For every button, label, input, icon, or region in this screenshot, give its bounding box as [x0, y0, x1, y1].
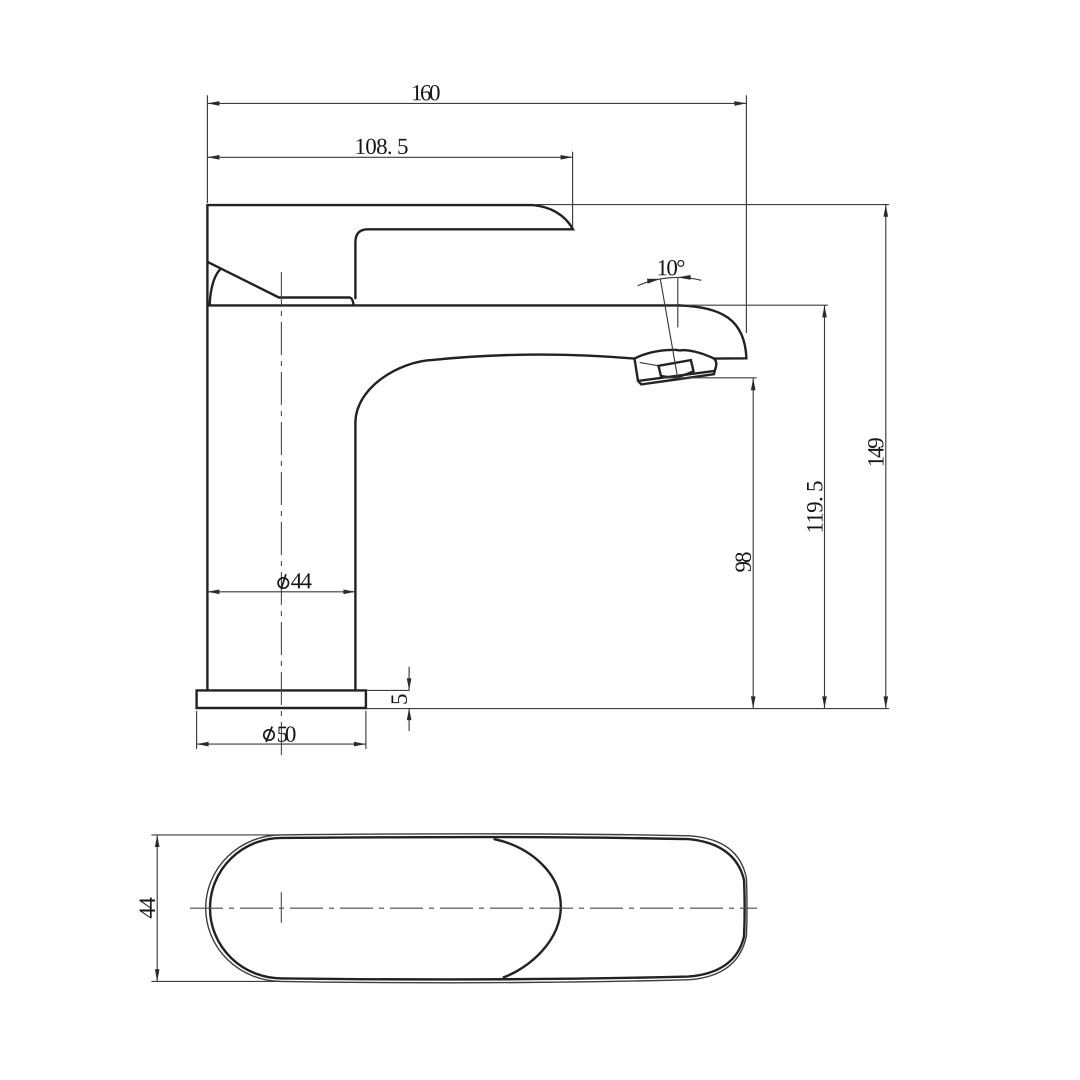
svg-text:160: 160	[411, 80, 441, 105]
svg-text:44: 44	[291, 568, 313, 593]
svg-text:119. 5: 119. 5	[802, 481, 827, 534]
svg-text:108. 5: 108. 5	[354, 134, 408, 159]
svg-text:149: 149	[864, 437, 889, 467]
svg-text:50: 50	[277, 722, 297, 747]
svg-text:44: 44	[135, 897, 160, 919]
svg-text:5: 5	[387, 693, 412, 705]
svg-text:98: 98	[731, 552, 756, 573]
svg-text:10°: 10°	[656, 255, 685, 280]
